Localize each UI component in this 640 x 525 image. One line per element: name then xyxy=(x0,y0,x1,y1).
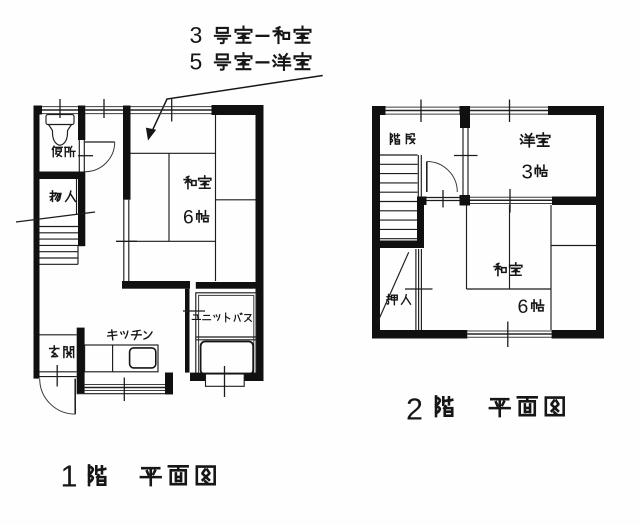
svg-text:1: 1 xyxy=(61,460,78,494)
svg-text:3: 3 xyxy=(190,22,203,48)
svg-text:2: 2 xyxy=(406,393,423,427)
svg-text:5: 5 xyxy=(190,48,203,74)
svg-text:6: 6 xyxy=(183,208,194,229)
svg-text:3: 3 xyxy=(522,161,533,184)
svg-text:6: 6 xyxy=(518,296,529,318)
